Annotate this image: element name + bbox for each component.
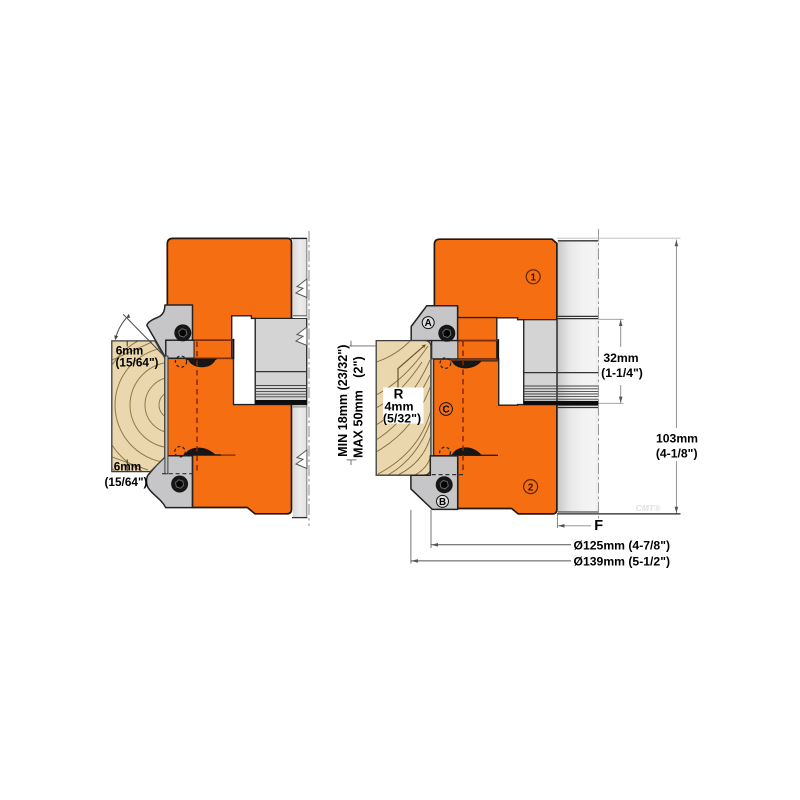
svg-text:(15/64"): (15/64") [105, 475, 148, 489]
svg-text:Ø125mm (4-7/8"): Ø125mm (4-7/8") [574, 538, 671, 552]
svg-text:MIN 18mm (23/32"): MIN 18mm (23/32") [336, 345, 350, 457]
svg-text:MAX 50mm: MAX 50mm [352, 390, 366, 458]
svg-text:F: F [594, 518, 603, 534]
svg-text:(1-1/4"): (1-1/4") [601, 366, 643, 380]
svg-text:1: 1 [530, 273, 536, 284]
svg-text:(5/32"): (5/32") [383, 411, 421, 425]
svg-text:2: 2 [528, 482, 534, 493]
svg-text:Ø139mm (5-1/2"): Ø139mm (5-1/2") [574, 555, 671, 569]
svg-text:C: C [442, 405, 449, 416]
svg-text:A: A [425, 318, 432, 329]
svg-text:(2"): (2") [352, 356, 366, 377]
svg-text:103mm: 103mm [656, 431, 698, 445]
svg-text:CMT®: CMT® [636, 503, 661, 513]
svg-text:(15/64"): (15/64") [116, 356, 159, 370]
svg-text:32mm: 32mm [603, 351, 638, 365]
svg-text:B: B [439, 497, 446, 508]
svg-text:(4-1/8"): (4-1/8") [656, 446, 698, 460]
svg-text:6mm: 6mm [114, 460, 142, 474]
